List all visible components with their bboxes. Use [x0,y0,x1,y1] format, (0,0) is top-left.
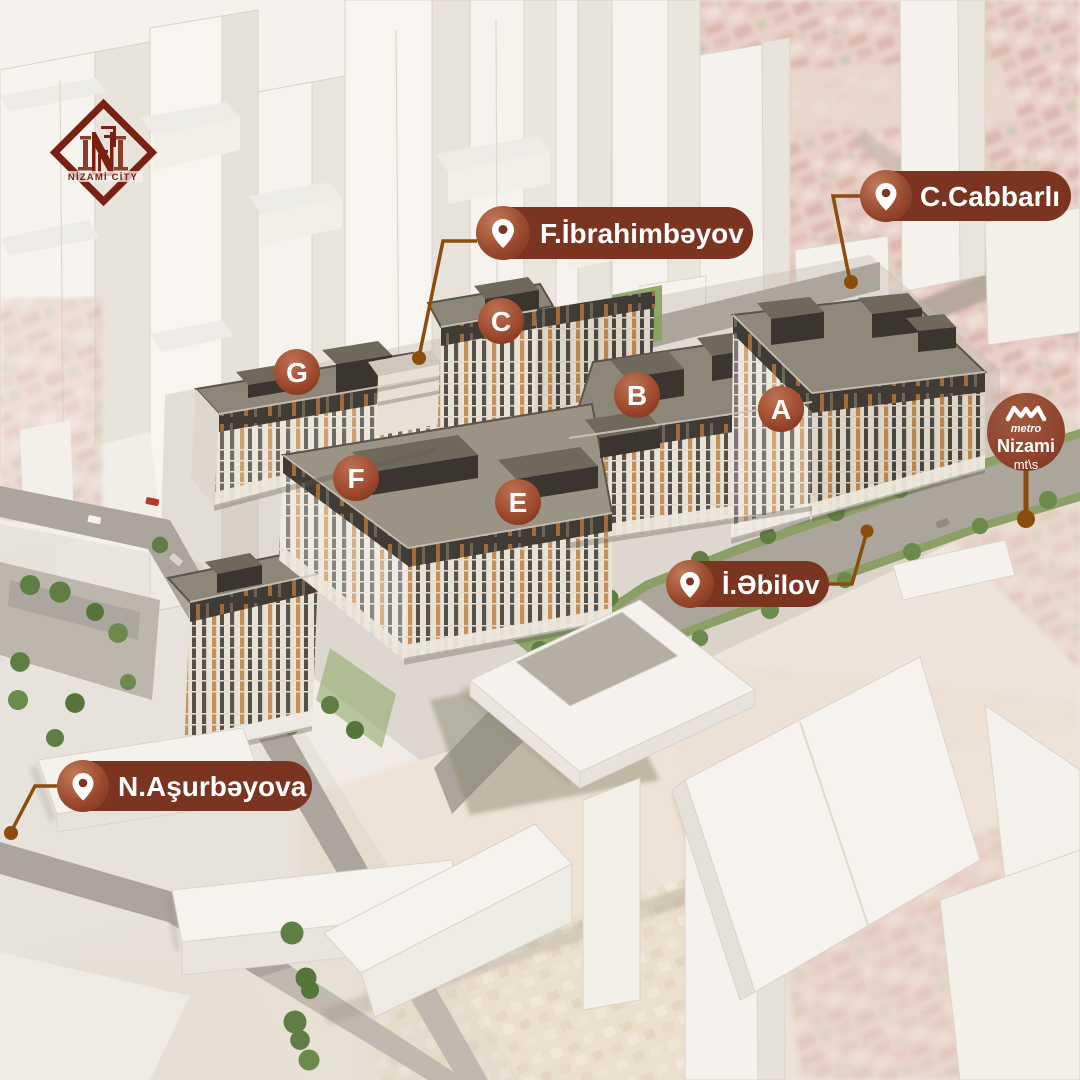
svg-text:F.İbrahimbəyov: F.İbrahimbəyov [540,218,744,249]
svg-text:A: A [771,394,791,425]
svg-text:G: G [286,357,308,388]
svg-text:İ.Əbilov: İ.Əbilov [722,570,820,600]
svg-text:metro: metro [1011,423,1042,435]
svg-text:Nizami: Nizami [997,436,1055,456]
svg-text:mt\s: mt\s [1014,457,1039,472]
svg-text:E: E [509,487,528,518]
svg-text:N.Aşurbəyova: N.Aşurbəyova [118,771,307,802]
svg-text:C: C [491,306,511,337]
svg-text:B: B [627,380,647,411]
svg-text:F: F [347,463,364,494]
svg-text:NİZAMİ CİTY: NİZAMİ CİTY [68,172,138,183]
svg-text:C.Cabbarlı: C.Cabbarlı [920,181,1060,212]
